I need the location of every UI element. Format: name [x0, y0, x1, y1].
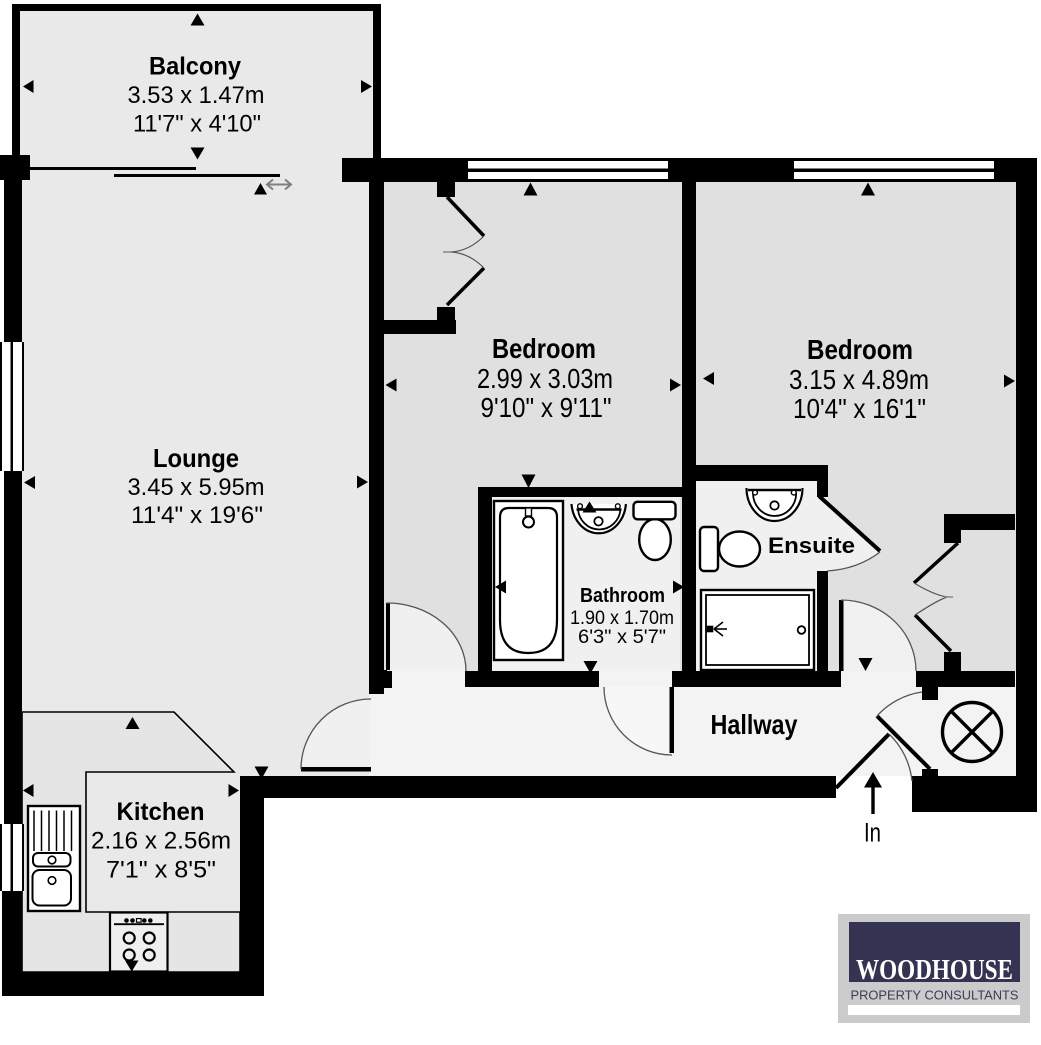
- svg-text:In: In: [864, 818, 881, 848]
- svg-text:7'1" x 8'5": 7'1" x 8'5": [106, 857, 216, 884]
- svg-text:2.16 x 2.56m: 2.16 x 2.56m: [91, 828, 231, 855]
- svg-text:2.99 x 3.03m: 2.99 x 3.03m: [477, 363, 613, 394]
- svg-text:Ensuite: Ensuite: [768, 533, 855, 558]
- svg-text:Kitchen: Kitchen: [117, 798, 205, 826]
- svg-text:6'3" x 5'7": 6'3" x 5'7": [578, 626, 666, 648]
- svg-text:PROPERTY CONSULTANTS: PROPERTY CONSULTANTS: [851, 988, 1019, 1003]
- svg-text:WOODHOUSE: WOODHOUSE: [856, 954, 1013, 986]
- svg-text:Hallway: Hallway: [711, 709, 798, 740]
- svg-text:10'4" x 16'1": 10'4" x 16'1": [793, 393, 926, 424]
- svg-text:Lounge: Lounge: [153, 443, 239, 473]
- svg-text:Balcony: Balcony: [149, 53, 241, 81]
- svg-text:3.45 x 5.95m: 3.45 x 5.95m: [128, 474, 265, 501]
- svg-text:3.15 x 4.89m: 3.15 x 4.89m: [789, 364, 929, 395]
- svg-text:3.53 x 1.47m: 3.53 x 1.47m: [128, 82, 265, 109]
- svg-text:11'7" x 4'10": 11'7" x 4'10": [133, 111, 261, 138]
- svg-text:9'10" x 9'11": 9'10" x 9'11": [481, 392, 612, 423]
- svg-text:11'4" x 19'6": 11'4" x 19'6": [131, 502, 263, 529]
- svg-text:Bathroom: Bathroom: [580, 584, 665, 607]
- svg-text:Bedroom: Bedroom: [807, 334, 913, 365]
- svg-text:Bedroom: Bedroom: [492, 333, 596, 364]
